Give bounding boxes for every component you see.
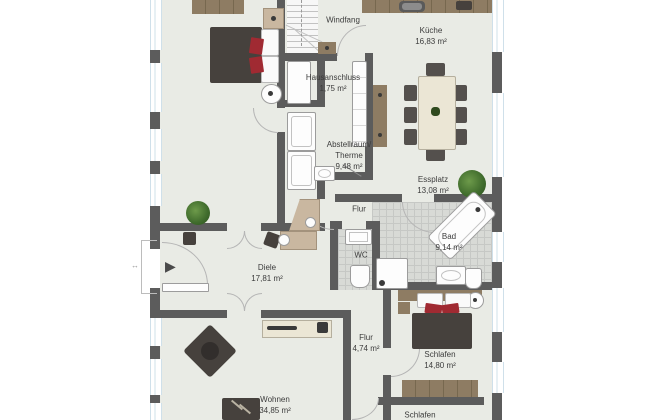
bed (210, 27, 262, 83)
stool (278, 234, 290, 246)
entrance-arrow-icon: ▶ (165, 259, 176, 273)
dining-chair (404, 129, 417, 145)
dimension-span-icon: ↔ (131, 261, 139, 270)
wall (343, 310, 351, 420)
kitchen-counter (362, 0, 492, 13)
dimension-line (141, 293, 157, 294)
window (492, 288, 504, 332)
window (492, 232, 504, 262)
dimension-line (141, 240, 142, 294)
wc-sink (345, 229, 372, 245)
wall (492, 52, 502, 93)
toilet (465, 268, 482, 289)
kitchen-tall-cabinet (373, 85, 387, 147)
room-label-wohnen: Wohnen 34,85 m² (259, 395, 291, 417)
window (150, 174, 162, 206)
shelf (318, 42, 336, 54)
rug (192, 0, 244, 14)
wall (150, 161, 160, 174)
wall (492, 332, 502, 362)
window (150, 359, 162, 395)
wall (150, 50, 160, 63)
wall (277, 132, 285, 223)
table-decoration (431, 107, 440, 116)
wall (492, 393, 502, 420)
dresser (402, 380, 478, 397)
soundbar (267, 326, 297, 330)
window (150, 63, 162, 112)
entrance-opening (150, 249, 160, 288)
room-label-windfang: Windfang (326, 16, 360, 27)
wall (330, 229, 338, 290)
window (492, 0, 504, 52)
window (492, 93, 504, 177)
nightstand (263, 8, 284, 29)
dining-chair (404, 107, 417, 123)
dining-chair (426, 63, 445, 76)
room-label-diele: Diele 17,81 m² (251, 263, 283, 285)
shower-drain (379, 280, 385, 286)
bed-pillow (261, 29, 279, 56)
wall (150, 346, 160, 359)
room-label-abstellraum: Abstellraum/ Therme 9,48 m² (327, 140, 371, 172)
accent-pillow (249, 56, 264, 74)
wall (150, 112, 160, 129)
wall (383, 290, 391, 348)
kitchen-sink (399, 1, 425, 12)
side-table (261, 84, 282, 104)
room-label-flur-upper: Flur (352, 205, 366, 216)
entrance-door-leaf (162, 283, 209, 292)
stairs (287, 0, 318, 53)
room-label-schlafen2: Schlafen (404, 411, 435, 420)
wall (335, 194, 402, 202)
window (150, 318, 162, 346)
nightstand (398, 302, 410, 314)
wall (150, 295, 160, 318)
window (150, 0, 162, 50)
wall (160, 310, 227, 318)
floor-plan: ▶ ↔ (0, 0, 650, 420)
therme-unit (287, 151, 316, 190)
hall-chair (183, 232, 196, 245)
window (150, 129, 162, 161)
room-label-wc: WC (354, 251, 367, 262)
plant (186, 201, 210, 225)
dimension-line (141, 240, 157, 241)
stool (305, 217, 316, 228)
wall (378, 397, 484, 405)
window (492, 362, 504, 393)
wall (150, 395, 160, 403)
window (150, 403, 162, 420)
cooktop (456, 1, 472, 10)
wall (261, 310, 351, 318)
room-label-schlafen: Schlafen 14,80 m² (424, 350, 456, 372)
accent-pillow (249, 37, 264, 55)
wall (150, 206, 160, 242)
speaker (317, 322, 328, 333)
toilet (350, 265, 370, 288)
wall (492, 262, 502, 288)
bath-sink (436, 266, 466, 285)
dining-chair (404, 85, 417, 101)
room-label-essplatz: Essplatz 13,08 m² (417, 175, 449, 197)
room-label-hausanschluss: Hausanschluss 1,75 m² (306, 73, 360, 95)
wall (277, 53, 337, 61)
room-label-flur-lower: Flur 4,74 m² (352, 333, 379, 355)
therme-unit (287, 112, 316, 151)
wall (492, 177, 502, 232)
door-jamb (150, 242, 160, 249)
floor-mat (222, 398, 260, 420)
room-label-kueche: Küche 16,83 m² (415, 26, 447, 48)
room-label-bad: Bad 9,14 m² (435, 232, 462, 254)
bed (412, 313, 472, 349)
